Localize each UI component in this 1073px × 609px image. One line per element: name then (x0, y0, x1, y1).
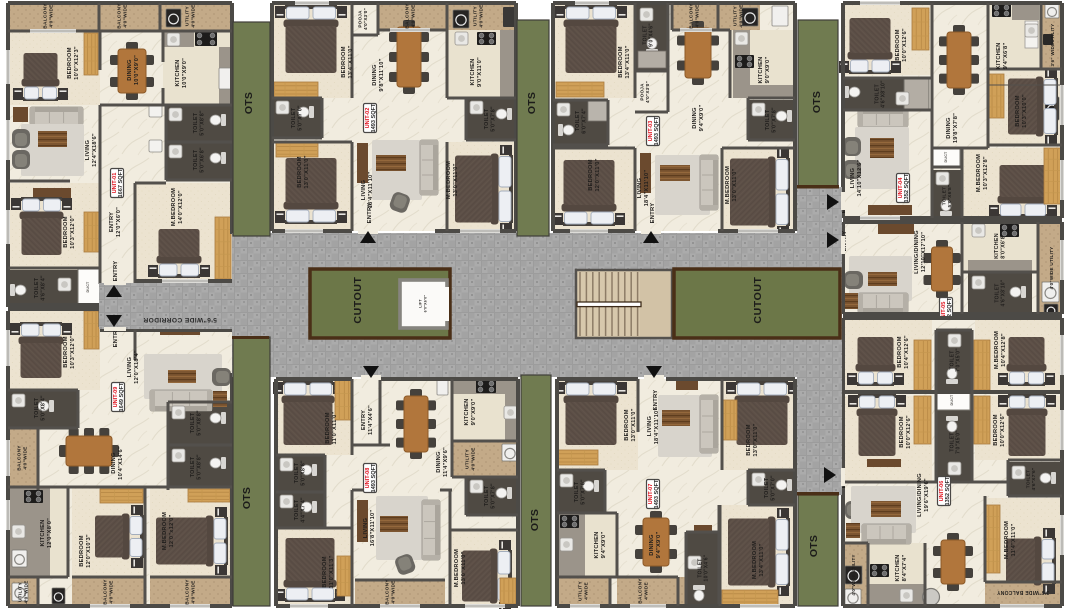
svg-text:19'8"X7'8": 19'8"X7'8" (953, 113, 959, 143)
svg-text:LIVING/DINING: LIVING/DINING (917, 473, 923, 517)
svg-text:CUTOUT: CUTOUT (752, 276, 764, 323)
svg-text:LIFT: LIFT (419, 299, 423, 308)
svg-text:UNIT-02: UNIT-02 (365, 108, 371, 129)
svg-text:ENTRY: ENTRY (361, 410, 367, 430)
svg-text:DINING: DINING (649, 534, 655, 556)
svg-text:1352 SQFT: 1352 SQFT (945, 476, 951, 505)
svg-text:18'4"X11'10": 18'4"X11'10" (654, 408, 660, 445)
svg-text:M.BEDROOM: M.BEDROOM (752, 541, 758, 579)
svg-text:4'0"WIDE: 4'0"WIDE (122, 4, 128, 28)
svg-text:TOILET: TOILET (34, 397, 40, 418)
svg-text:BEDROOM: BEDROOM (899, 416, 905, 447)
svg-text:DINING: DINING (372, 64, 378, 86)
svg-text:TOILET: TOILET (190, 412, 196, 433)
svg-text:LIVING: LIVING (647, 415, 653, 436)
svg-text:ENTRY: ENTRY (367, 203, 373, 224)
svg-text:10'0"X9'0": 10'0"X9'0" (134, 55, 140, 85)
svg-text:9'0"X11'0": 9'0"X11'0" (477, 57, 483, 87)
svg-text:DINING: DINING (946, 117, 952, 139)
svg-text:10'3"X12'0": 10'3"X12'0" (70, 335, 76, 369)
svg-text:BEDROOM: BEDROOM (325, 412, 331, 443)
svg-text:9'4"X6'8": 9'4"X6'8" (1003, 43, 1009, 70)
svg-text:3'6" WIDEUTILITY: 3'6" WIDEUTILITY (1050, 23, 1055, 66)
svg-text:4'4"X7'4": 4'4"X7'4" (301, 497, 307, 523)
svg-text:BEDROOM: BEDROOM (341, 46, 347, 77)
svg-text:13'0"X11'0": 13'0"X11'0" (304, 155, 310, 188)
svg-text:M.BEDROOM: M.BEDROOM (1004, 521, 1010, 559)
svg-text:4'0"X3'0": 4'0"X3'0" (363, 8, 368, 30)
svg-text:M.BEDROOM: M.BEDROOM (162, 512, 168, 550)
svg-text:13'0"X11'0": 13'0"X11'0" (732, 168, 738, 201)
svg-text:16'8"X11'10": 16'8"X11'10" (370, 510, 376, 547)
svg-text:10'4"X12'6": 10'4"X12'6" (904, 335, 910, 369)
svg-text:5'0"X7'0": 5'0"X7'0" (771, 475, 777, 501)
svg-text:1493 SQFT: 1493 SQFT (654, 479, 660, 508)
svg-text:M.BEDROOM: M.BEDROOM (454, 549, 460, 587)
svg-text:DUCT: DUCT (944, 151, 948, 163)
svg-text:4'WIDE: 4'WIDE (583, 582, 589, 600)
svg-text:4'0"WIDE: 4'0"WIDE (108, 580, 114, 604)
svg-text:UNIT-06: UNIT-06 (939, 481, 945, 502)
svg-text:TOILET: TOILET (1025, 470, 1031, 488)
svg-text:CUTOUT: CUTOUT (352, 276, 364, 323)
svg-text:TOILET: TOILET (294, 499, 300, 520)
svg-text:DINING: DINING (692, 107, 698, 129)
svg-text:13'0"X11'0": 13'0"X11'0" (453, 163, 459, 196)
svg-text:KITCHEN: KITCHEN (594, 531, 600, 558)
svg-text:12'0"X10'3": 12'0"X10'3" (86, 534, 92, 568)
svg-text:1667 SQFT: 1667 SQFT (118, 168, 124, 197)
svg-text:5'0"X8'4": 5'0"X8'4" (41, 395, 47, 421)
svg-text:UNIT-07: UNIT-07 (648, 484, 654, 505)
svg-text:9'4"X9'0": 9'4"X9'0" (699, 105, 705, 132)
svg-text:M.BEDROOM: M.BEDROOM (171, 188, 177, 226)
svg-text:BEDROOM: BEDROOM (63, 336, 69, 367)
svg-text:8'4"X7'4": 8'4"X7'4" (902, 555, 908, 582)
svg-text:TOILET: TOILET (575, 110, 581, 131)
svg-text:TOILET: TOILET (193, 112, 199, 133)
svg-text:5'6"WIDE CORRIDOR: 5'6"WIDE CORRIDOR (143, 316, 217, 323)
svg-text:4'0"WIDE UTILITY: 4'0"WIDE UTILITY (851, 554, 856, 595)
svg-text:DINING: DINING (127, 59, 133, 81)
svg-text:UTILITY: UTILITY (17, 582, 23, 602)
svg-text:4'0"WIDE: 4'0"WIDE (23, 580, 29, 604)
svg-text:10'4"X12'8": 10'4"X12'8" (1001, 333, 1007, 367)
svg-text:KITCHEN: KITCHEN (758, 56, 764, 83)
svg-text:3'6"WIDE BALCONY: 3'6"WIDE BALCONY (996, 589, 1049, 595)
svg-text:UNIT-04: UNIT-04 (898, 177, 904, 199)
svg-text:4'0"WIDE: 4'0"WIDE (48, 4, 54, 28)
svg-text:BEDROOM: BEDROOM (63, 216, 69, 247)
svg-text:KITCHEN: KITCHEN (996, 42, 1002, 69)
svg-text:OTS: OTS (526, 92, 538, 114)
svg-text:BEDROOM: BEDROOM (618, 46, 624, 77)
svg-text:10'0"X12'6": 10'0"X12'6" (906, 415, 912, 449)
svg-text:DINING: DINING (111, 452, 117, 474)
svg-text:OTS: OTS (811, 91, 823, 113)
svg-text:UNIT-03: UNIT-03 (648, 121, 654, 142)
svg-text:BALCONY: BALCONY (404, 3, 410, 29)
svg-text:BEDROOM: BEDROOM (746, 424, 752, 455)
svg-text:BEDROOM: BEDROOM (322, 556, 328, 587)
svg-text:M.BEDROOM: M.BEDROOM (976, 154, 982, 192)
svg-text:OTS: OTS (529, 509, 541, 531)
svg-text:BALCONY: BALCONY (637, 578, 643, 604)
svg-text:7'0"X5'0": 7'0"X5'0" (955, 348, 961, 372)
svg-text:13'4"X11'0": 13'4"X11'0" (348, 45, 354, 78)
svg-text:POOJA: POOJA (357, 10, 362, 28)
svg-text:TOILET: TOILET (874, 83, 880, 103)
svg-text:ENTRY: ENTRY (650, 203, 656, 224)
svg-text:BALCONY: BALCONY (184, 579, 190, 605)
svg-text:BEDROOM: BEDROOM (895, 29, 901, 60)
svg-text:TOILET: TOILET (34, 277, 40, 298)
svg-text:8'0"X6'8": 8'0"X6'8" (1001, 233, 1007, 259)
svg-text:BEDROOM: BEDROOM (67, 47, 73, 78)
svg-text:6'0"X6'0": 6'0"X6'0" (423, 295, 427, 313)
svg-text:5'0"X8'8": 5'0"X8'8" (200, 110, 206, 136)
svg-text:KITCHEN: KITCHEN (470, 58, 476, 85)
svg-text:4'0"WIDE: 4'0"WIDE (410, 4, 416, 28)
svg-text:10'0"X9'0": 10'0"X9'0" (182, 58, 188, 88)
svg-text:11'0"X11'3": 11'0"X11'3" (329, 555, 335, 588)
svg-text:TOILET: TOILET (764, 477, 770, 498)
svg-text:DUCT: DUCT (950, 394, 954, 406)
svg-text:TOILET: TOILET (484, 485, 490, 506)
svg-text:14'0"X12'0": 14'0"X12'0" (178, 190, 184, 224)
svg-text:KITCHEN: KITCHEN (994, 233, 1000, 259)
svg-text:13'4"X11'0": 13'4"X11'0" (625, 45, 631, 78)
svg-text:4'0"WIDE: 4'0"WIDE (22, 446, 28, 470)
svg-text:6'0"X7'4": 6'0"X7'4" (582, 108, 588, 134)
svg-text:13'0"X11'0": 13'0"X11'0" (631, 408, 637, 441)
svg-text:5'0"X6'8": 5'0"X6'8" (200, 147, 206, 173)
svg-text:10'3"X10'0": 10'3"X10'0" (1022, 94, 1028, 128)
svg-text:10'4"X14'6": 10'4"X14'6" (118, 446, 124, 480)
svg-text:M.BEDROOM: M.BEDROOM (725, 166, 731, 204)
svg-text:9'8"X11'10": 9'8"X11'10" (379, 58, 385, 91)
svg-text:18'4"X11'10": 18'4"X11'10" (644, 170, 650, 207)
svg-text:12'4"X18'6": 12'4"X18'6" (92, 133, 98, 167)
svg-text:KITCHEN: KITCHEN (175, 59, 181, 86)
svg-text:OTS: OTS (241, 487, 253, 509)
svg-text:7'0"X5'0": 7'0"X5'0" (955, 430, 961, 454)
svg-text:9'4"X9'0": 9'4"X9'0" (601, 532, 607, 559)
svg-text:TOILET: TOILET (574, 481, 580, 502)
svg-text:4'0"WIDE: 4'0"WIDE (738, 4, 744, 28)
svg-text:UNIT-08: UNIT-08 (365, 468, 371, 489)
svg-text:TOILET: TOILET (294, 462, 300, 483)
svg-text:4'0"X3'0": 4'0"X3'0" (645, 81, 650, 103)
svg-text:M.BEDROOM: M.BEDROOM (446, 161, 452, 199)
svg-text:DUCT: DUCT (86, 281, 90, 293)
svg-text:LIVING: LIVING (127, 356, 133, 377)
svg-text:KITCHEN: KITCHEN (464, 398, 470, 425)
svg-text:12'0"X6'0": 12'0"X6'0" (116, 207, 122, 237)
svg-text:UTILITY: UTILITY (472, 6, 478, 26)
svg-text:10'3"X12'0": 10'3"X12'0" (70, 215, 76, 249)
svg-text:4'6"X7'6": 4'6"X7'6" (1031, 468, 1037, 491)
svg-text:BALCONY: BALCONY (116, 3, 122, 29)
svg-text:UTILITY: UTILITY (464, 449, 470, 469)
svg-text:LIVING: LIVING (363, 517, 369, 538)
svg-text:13'0"X11'0": 13'0"X11'0" (753, 423, 759, 456)
svg-text:BALCONY: BALCONY (42, 3, 48, 29)
svg-text:BEDROOM: BEDROOM (624, 409, 630, 440)
svg-text:BEDROOM: BEDROOM (1015, 95, 1021, 126)
svg-text:ENTRY: ENTRY (653, 390, 659, 411)
svg-text:TOILET: TOILET (765, 109, 771, 130)
svg-text:UTILITY: UTILITY (577, 581, 583, 601)
svg-text:12'0"X11'0": 12'0"X11'0" (595, 158, 601, 191)
svg-text:TOILET: TOILET (291, 107, 297, 128)
svg-text:LIVING: LIVING (85, 139, 91, 160)
svg-text:9'0"X4'6": 9'0"X4'6" (648, 23, 654, 47)
svg-text:BALCONY: BALCONY (102, 579, 108, 605)
svg-text:UNIT-09: UNIT-09 (113, 387, 119, 408)
svg-text:12'10"X17'10": 12'10"X17'10" (921, 232, 927, 272)
svg-text:1649 SQFT: 1649 SQFT (119, 382, 125, 411)
svg-text:4'0"WIDE: 4'0"WIDE (390, 580, 396, 604)
svg-text:10'0"X12'3": 10'0"X12'3" (74, 46, 80, 80)
svg-text:KITCHEN: KITCHEN (895, 554, 901, 581)
svg-text:14'10"X12'6": 14'10"X12'6" (857, 159, 863, 196)
svg-text:1493 SQFT: 1493 SQFT (371, 463, 377, 492)
svg-text:BEDROOM: BEDROOM (588, 159, 594, 190)
svg-text:10'3"X12'8": 10'3"X12'8" (983, 156, 989, 190)
svg-text:10'0"X12'6": 10'0"X12'6" (1000, 413, 1006, 447)
svg-text:19'6"X19'6": 19'6"X19'6" (924, 478, 930, 512)
svg-text:LIVING: LIVING (637, 177, 643, 198)
svg-text:11'0"X11'0": 11'0"X11'0" (332, 411, 338, 444)
svg-text:5'0"X7'8": 5'0"X7'8" (491, 106, 497, 132)
svg-text:5'0"X7'8": 5'0"X7'8" (491, 483, 497, 509)
svg-text:BEDROOM: BEDROOM (897, 336, 903, 367)
svg-text:4'0"WIDE: 4'0"WIDE (470, 447, 476, 471)
svg-text:1493 SQFT: 1493 SQFT (371, 103, 377, 132)
svg-text:4'0"WIDE: 4'0"WIDE (190, 580, 196, 604)
svg-text:TOILET: TOILET (190, 456, 196, 477)
svg-text:DINING: DINING (436, 451, 442, 473)
svg-text:5'0"X8'8": 5'0"X8'8" (197, 410, 203, 436)
svg-text:5'0"X6'8": 5'0"X6'8" (947, 185, 953, 208)
svg-text:M.BEDROOM: M.BEDROOM (994, 331, 1000, 369)
svg-text:ENTRY: ENTRY (113, 261, 119, 282)
svg-text:5'0"X7'0": 5'0"X7'0" (581, 479, 587, 505)
svg-text:12'0"x12'0": 12'0"x12'0" (169, 514, 175, 547)
svg-text:TOILET: TOILET (193, 149, 199, 170)
svg-text:BALCONY: BALCONY (384, 579, 390, 605)
svg-text:4'6"X8'4": 4'6"X8'4" (41, 275, 47, 301)
svg-text:13'4"X11'0": 13'4"X11'0" (759, 543, 765, 576)
svg-text:1352 SQFT: 1352 SQFT (904, 173, 910, 202)
svg-text:13'0"X11'0": 13'0"X11'0" (461, 551, 467, 584)
svg-text:4'WIDE: 4'WIDE (643, 582, 649, 600)
svg-text:12'0"X8'0": 12'0"X8'0" (47, 518, 53, 548)
svg-text:BEDROOM: BEDROOM (993, 414, 999, 445)
svg-text:4'0"WIDE UTILITY: 4'0"WIDE UTILITY (1049, 246, 1054, 289)
svg-text:ENTRY: ENTRY (109, 212, 115, 232)
svg-text:10'0"X12'6": 10'0"X12'6" (902, 28, 908, 62)
svg-text:1493 SQFT: 1493 SQFT (654, 116, 660, 145)
svg-text:9'0"X9'0": 9'0"X9'0" (471, 399, 477, 426)
svg-text:4'0"WIDE: 4'0"WIDE (694, 4, 700, 28)
svg-text:4'6"X8'10": 4'6"X8'10" (1000, 279, 1006, 306)
svg-text:BALCONY: BALCONY (688, 3, 694, 29)
svg-text:5'0"X8'8": 5'0"X8'8" (197, 454, 203, 480)
svg-text:TOILET: TOILET (484, 108, 490, 129)
svg-text:9'4"X9'0": 9'4"X9'0" (656, 532, 662, 559)
svg-text:11'4"X9'6": 11'4"X9'6" (443, 447, 449, 477)
svg-text:4'6"X8'10": 4'6"X8'10" (880, 80, 886, 108)
svg-text:UTILITY: UTILITY (732, 6, 738, 26)
svg-text:5'0"X7'0": 5'0"X7'0" (298, 105, 304, 131)
svg-text:4'0"WIDE: 4'0"WIDE (478, 4, 484, 28)
svg-text:OTS: OTS (808, 535, 820, 557)
svg-text:BALCONY: BALCONY (16, 445, 22, 471)
svg-text:11'4"X4'6": 11'4"X4'6" (368, 405, 374, 435)
svg-text:BEDROOM: BEDROOM (297, 156, 303, 187)
svg-text:POOJA: POOJA (639, 83, 644, 101)
svg-text:LIVING/DINING: LIVING/DINING (914, 230, 920, 274)
svg-text:KITCHEN: KITCHEN (40, 519, 46, 546)
svg-text:UTILITY: UTILITY (184, 6, 190, 26)
svg-text:9'0"X9'0": 9'0"X9'0" (765, 57, 771, 84)
svg-text:LIVING: LIVING (361, 179, 367, 200)
svg-text:5'0"X7'8": 5'0"X7'8" (772, 107, 778, 133)
svg-text:5'0"X8'8": 5'0"X8'8" (301, 460, 307, 486)
svg-text:11'4"X11'0": 11'4"X11'0" (1011, 523, 1017, 556)
svg-text:OTS: OTS (243, 92, 255, 114)
svg-text:UNIT-01: UNIT-01 (112, 173, 118, 194)
svg-text:4'0"WIDE: 4'0"WIDE (190, 4, 196, 28)
svg-text:LIVING: LIVING (850, 167, 856, 188)
svg-text:TOILET: TOILET (941, 187, 947, 205)
svg-text:10'0"X4'6": 10'0"X4'6" (703, 554, 709, 581)
svg-text:12'0"X18'4": 12'0"X18'4" (134, 350, 140, 384)
svg-text:BEDROOM: BEDROOM (79, 535, 85, 566)
